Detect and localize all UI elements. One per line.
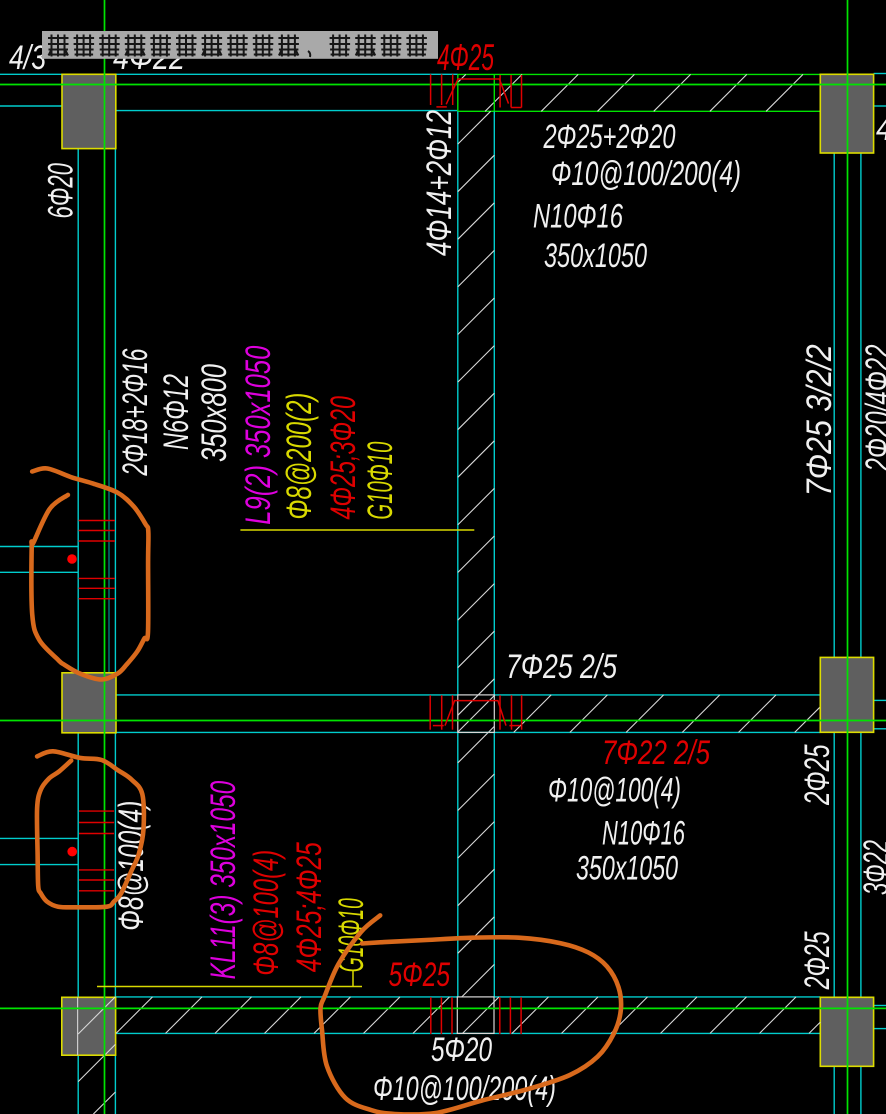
svg-text:4Φ14+2Φ12: 4Φ14+2Φ12 [420,110,459,256]
svg-text:N10Φ16: N10Φ16 [602,814,685,852]
svg-text:Φ10@100(4): Φ10@100(4) [548,771,681,809]
svg-text:350x1050: 350x1050 [544,236,647,274]
svg-text:7Φ22 2/5: 7Φ22 2/5 [602,733,711,771]
svg-text:2Φ25: 2Φ25 [798,931,837,990]
svg-text:N6Φ12: N6Φ12 [157,374,196,450]
svg-text:7Φ25 3/2/2: 7Φ25 3/2/2 [800,344,839,496]
svg-text:3Φ22: 3Φ22 [857,840,886,895]
svg-text:2Φ25: 2Φ25 [798,744,837,805]
svg-text:350x800: 350x800 [195,364,234,462]
svg-text:N10Φ16: N10Φ16 [533,197,623,235]
svg-text:4/3: 4/3 [9,38,46,76]
svg-text:2Φ18+2Φ16: 2Φ18+2Φ16 [116,349,155,477]
svg-text:5Φ20: 5Φ20 [431,1030,492,1068]
svg-text:L9(2) 350x1050: L9(2) 350x1050 [239,346,278,525]
svg-text:KL11(3) 350x1050: KL11(3) 350x1050 [204,781,243,980]
svg-text:7Φ25 2/5: 7Φ25 2/5 [506,647,618,685]
svg-text:4Φ25;4Φ25: 4Φ25;4Φ25 [290,842,329,972]
svg-text:2Φ20/4Φ22: 2Φ20/4Φ22 [859,344,886,472]
svg-text:Φ8@100(4): Φ8@100(4) [247,850,286,976]
svg-text:4Φ25: 4Φ25 [437,36,494,78]
svg-text:Φ8@200(2): Φ8@200(2) [280,393,319,520]
svg-text:350x1050: 350x1050 [576,849,678,887]
svg-text:2Φ25+2Φ20: 2Φ25+2Φ20 [543,117,676,155]
svg-text:6Φ20: 6Φ20 [41,163,80,219]
svg-text:4Φ25;3Φ20: 4Φ25;3Φ20 [324,396,363,520]
svg-text:5Φ25: 5Φ25 [389,955,451,993]
svg-text:Φ10@100/200(4): Φ10@100/200(4) [551,154,741,192]
svg-text:4: 4 [876,109,886,147]
svg-text:G10Φ10: G10Φ10 [361,442,400,520]
